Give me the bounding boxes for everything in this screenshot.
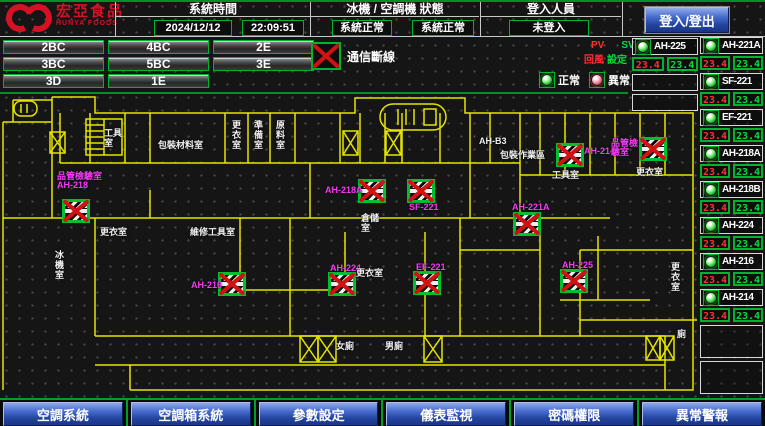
unit-name-label: AH-218B [722,184,760,195]
device-sf-221-icon[interactable] [407,179,435,203]
sv-value: 23.4 [733,128,763,142]
nav-ahu-box-system-button[interactable]: 空調箱系統 [131,402,251,426]
unit-sf-221[interactable]: SF-221 [700,73,763,90]
unit-values-ah-214: 23.423.4 [700,308,763,322]
shaft-x-icon [386,131,401,155]
unit-ef-221[interactable]: EF-221 [700,109,763,126]
pv-value: 23.4 [700,56,730,70]
empty-slot [700,325,763,358]
pv-value: 23.4 [700,128,730,142]
unit-values-ef-221: 23.423.4 [700,128,763,142]
shaft-x-icon [300,336,318,362]
device-band [221,281,243,287]
pv-value: 23.4 [700,236,730,250]
unit-values-ah-216: 23.423.4 [700,272,763,286]
unit-column-a: AH-22523.423.4 [632,38,698,114]
device-ah-218-icon[interactable] [62,199,90,223]
unit-status-lamp-icon [703,218,719,234]
lamp [705,292,717,304]
nav-ac-system-button[interactable]: 空調系統 [3,402,123,426]
device-ah-221a-icon[interactable] [513,212,541,236]
sv-value: 23.4 [733,308,763,322]
lamp [705,112,717,124]
nav-meter-monitor-button[interactable]: 儀表監視 [386,402,506,426]
pv-value: 23.4 [700,308,730,322]
unit-ah-225[interactable]: AH-225 [632,38,698,55]
unit-name-label: SF-221 [722,76,752,87]
sv-value: 23.4 [733,200,763,214]
device-band [331,281,353,287]
unit-name-label: AH-216 [722,256,753,267]
unit-name-label: AH-218A [722,148,760,159]
lamp [705,148,717,160]
device-band [642,146,664,152]
bottom-nav-bar: 空調系統空調箱系統參數設定儀表監視密碼權限異常警報 [0,398,765,426]
sv-value: 23.4 [733,92,763,106]
device-band [361,188,383,194]
shaft-x-icon [660,336,674,360]
device-band [563,278,585,284]
device-band [516,221,538,227]
unit-name-label: AH-221A [722,40,760,51]
device-band [65,208,87,214]
unit-name-label: AH-214 [722,292,753,303]
pv-value: 23.4 [632,57,664,71]
nav-cell-password-access: 密碼權限 [509,400,637,426]
device-ah-216-icon[interactable] [218,272,246,296]
device-ah-225-icon[interactable] [560,269,588,293]
nav-param-setting-button[interactable]: 參數設定 [259,402,379,426]
unit-values-ah-224: 23.423.4 [700,236,763,250]
hvac-scada-screen: 宏亞食品 HUNYA FOODS 系統時間 2024/12/12 22:09:5… [0,0,765,426]
sv-value: 23.4 [733,236,763,250]
lamp [705,76,717,88]
unit-status-lamp-icon [703,74,719,90]
lamp [705,256,717,268]
empty-slot [632,94,698,111]
lamp [637,41,649,53]
shaft-x-icon [318,336,336,362]
lamp [705,184,717,196]
device-ah-218a-icon[interactable] [358,179,386,203]
pv-value: 23.4 [700,200,730,214]
unit-ah-216[interactable]: AH-216 [700,253,763,270]
unit-values-sf-221: 23.423.4 [700,92,763,106]
unit-status-lamp-icon [703,182,719,198]
sv-value: 23.4 [667,57,699,71]
device-band [410,188,432,194]
device-ef-221-icon[interactable] [413,271,441,295]
nav-cell-alarm: 異常警報 [637,400,765,426]
unit-name-label: AH-224 [722,220,753,231]
pv-value: 23.4 [700,272,730,286]
shaft-x-icon [424,336,442,362]
nav-cell-meter-monitor: 儀表監視 [381,400,509,426]
shaft-x-icon [646,336,660,360]
unit-values-ah-225: 23.423.4 [632,57,698,71]
device-ah-214-icon[interactable] [556,143,584,167]
unit-status-lamp-icon [703,290,719,306]
unit-name-label: AH-225 [654,41,685,52]
unit-name-label: EF-221 [722,112,752,123]
device-ah-224-icon[interactable] [328,272,356,296]
device-band [416,280,438,286]
sv-value: 23.4 [733,56,763,70]
lamp [705,220,717,232]
device-band [559,152,581,158]
unit-ah-214[interactable]: AH-214 [700,289,763,306]
lamp [705,40,717,52]
plan-top-green-line [0,92,628,94]
unit-status-lamp-icon [703,110,719,126]
pv-value: 23.4 [700,164,730,178]
nav-alarm-button[interactable]: 異常警報 [642,402,762,426]
unit-ah-224[interactable]: AH-224 [700,217,763,234]
unit-ah-218b[interactable]: AH-218B [700,181,763,198]
unit-status-lamp-icon [703,254,719,270]
nav-cell-ac-system: 空調系統 [0,400,126,426]
nav-cell-param-setting: 參數設定 [254,400,382,426]
nav-cell-ahu-box-system: 空調箱系統 [126,400,254,426]
shaft-x-icon [343,131,358,155]
unit-status-lamp-icon [703,146,719,162]
sv-value: 23.4 [733,164,763,178]
pv-value: 23.4 [700,92,730,106]
unit-values-ah-218a: 23.423.4 [700,164,763,178]
device-ah-218b-icon[interactable] [639,137,667,161]
unit-status-lamp-icon [703,38,719,54]
empty-slot [632,74,698,91]
unit-ah-218a[interactable]: AH-218A [700,145,763,162]
sv-value: 23.4 [733,272,763,286]
nav-password-access-button[interactable]: 密碼權限 [514,402,634,426]
unit-column-b: AH-221A23.423.4SF-22123.423.4EF-22123.42… [700,37,763,397]
empty-slot [700,361,763,394]
unit-values-ah-218b: 23.423.4 [700,200,763,214]
unit-ah-221a[interactable]: AH-221A [700,37,763,54]
unit-status-lamp-icon [635,39,651,55]
unit-values-ah-221a: 23.423.4 [700,56,763,70]
